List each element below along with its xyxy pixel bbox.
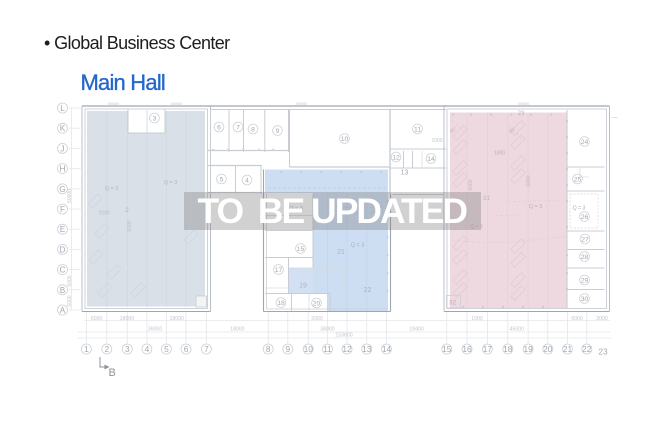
svg-text:E: E [60, 224, 66, 234]
svg-text:12: 12 [342, 344, 352, 354]
svg-text:G: G [59, 184, 65, 194]
svg-text:18400: 18400 [409, 327, 424, 333]
svg-text:21: 21 [563, 344, 573, 354]
svg-text:6000: 6000 [127, 220, 133, 231]
svg-text:Q = 3: Q = 3 [164, 180, 178, 186]
svg-text:13: 13 [362, 344, 372, 354]
svg-text:2000: 2000 [311, 316, 323, 322]
svg-text:—: — [612, 115, 618, 121]
svg-text:Q = 3: Q = 3 [351, 243, 365, 249]
svg-text:C: C [60, 265, 66, 275]
svg-text:A: A [60, 305, 66, 315]
svg-text:21: 21 [337, 249, 345, 256]
svg-text:2000: 2000 [98, 211, 109, 217]
svg-text:24: 24 [581, 139, 589, 146]
svg-text:1000: 1000 [471, 316, 483, 322]
svg-text:15: 15 [442, 344, 452, 354]
svg-text:32: 32 [449, 300, 457, 307]
svg-text:22: 22 [364, 287, 372, 294]
svg-text:9: 9 [285, 344, 290, 354]
svg-text:36000: 36000 [148, 327, 163, 333]
svg-text:25: 25 [574, 176, 582, 183]
svg-text:9: 9 [276, 128, 280, 135]
svg-text:23: 23 [598, 347, 608, 357]
svg-text:18: 18 [277, 300, 285, 307]
svg-text:6: 6 [217, 124, 221, 131]
svg-text:K: K [60, 123, 66, 133]
svg-text:6000: 6000 [526, 175, 532, 186]
svg-text:Q = 3: Q = 3 [105, 186, 119, 192]
svg-text:20: 20 [313, 300, 321, 307]
svg-text:1000: 1000 [494, 151, 505, 157]
svg-text:14: 14 [382, 344, 392, 354]
svg-text:D: D [60, 244, 66, 254]
svg-text:B: B [60, 285, 66, 295]
svg-text:153600: 153600 [335, 333, 352, 339]
svg-text:6000: 6000 [571, 316, 583, 322]
svg-text:H: H [60, 164, 66, 174]
svg-text:23: 23 [518, 111, 525, 117]
svg-text:60000: 60000 [67, 189, 73, 203]
svg-text:5: 5 [220, 176, 224, 183]
svg-text:10: 10 [341, 136, 349, 143]
svg-text:6: 6 [184, 344, 189, 354]
svg-text:27: 27 [581, 236, 589, 243]
svg-text:Q = 3: Q = 3 [529, 204, 543, 210]
svg-text:5: 5 [164, 344, 169, 354]
svg-text:19: 19 [523, 344, 533, 354]
svg-text:4: 4 [145, 344, 150, 354]
svg-text:45000: 45000 [510, 327, 525, 333]
svg-text:6000: 6000 [91, 316, 103, 322]
svg-text:28: 28 [581, 254, 589, 261]
svg-text:Q = 3: Q = 3 [573, 206, 586, 212]
svg-text:15: 15 [297, 246, 305, 253]
svg-text:17: 17 [275, 267, 283, 274]
svg-text:14: 14 [427, 156, 435, 163]
svg-text:F: F [60, 204, 65, 214]
svg-text:18000: 18000 [169, 316, 184, 322]
svg-text:B: B [109, 367, 116, 379]
svg-text:11: 11 [414, 126, 421, 133]
svg-text:20: 20 [543, 344, 553, 354]
svg-text:18: 18 [503, 344, 513, 354]
svg-text:8: 8 [266, 344, 271, 354]
svg-text:8: 8 [251, 126, 255, 133]
svg-text:2: 2 [104, 344, 109, 354]
svg-text:3: 3 [153, 115, 157, 122]
svg-text:3000: 3000 [596, 316, 608, 322]
svg-text:22: 22 [582, 344, 592, 354]
svg-text:29: 29 [581, 277, 589, 284]
svg-text:J: J [60, 143, 64, 153]
svg-text:1000: 1000 [431, 138, 442, 144]
svg-text:38000: 38000 [320, 327, 335, 333]
svg-text:26: 26 [581, 214, 589, 221]
svg-text:18000: 18000 [120, 316, 135, 322]
svg-text:13: 13 [401, 170, 409, 177]
svg-text:1: 1 [84, 344, 89, 354]
svg-text:6000: 6000 [67, 295, 73, 306]
svg-text:16: 16 [462, 344, 472, 354]
svg-text:L: L [60, 103, 65, 113]
svg-text:12: 12 [392, 154, 400, 161]
svg-text:3: 3 [125, 344, 130, 354]
svg-text:18000: 18000 [230, 327, 245, 333]
svg-text:6000: 6000 [468, 179, 474, 190]
svg-text:30: 30 [581, 296, 589, 303]
svg-text:11: 11 [323, 344, 332, 354]
svg-text:6000: 6000 [67, 275, 73, 286]
svg-text:19: 19 [299, 283, 307, 290]
svg-text:7: 7 [236, 124, 240, 131]
svg-text:4: 4 [245, 177, 249, 184]
svg-text:17: 17 [483, 344, 493, 354]
svg-text:7: 7 [204, 344, 209, 354]
svg-text:10: 10 [304, 344, 314, 354]
